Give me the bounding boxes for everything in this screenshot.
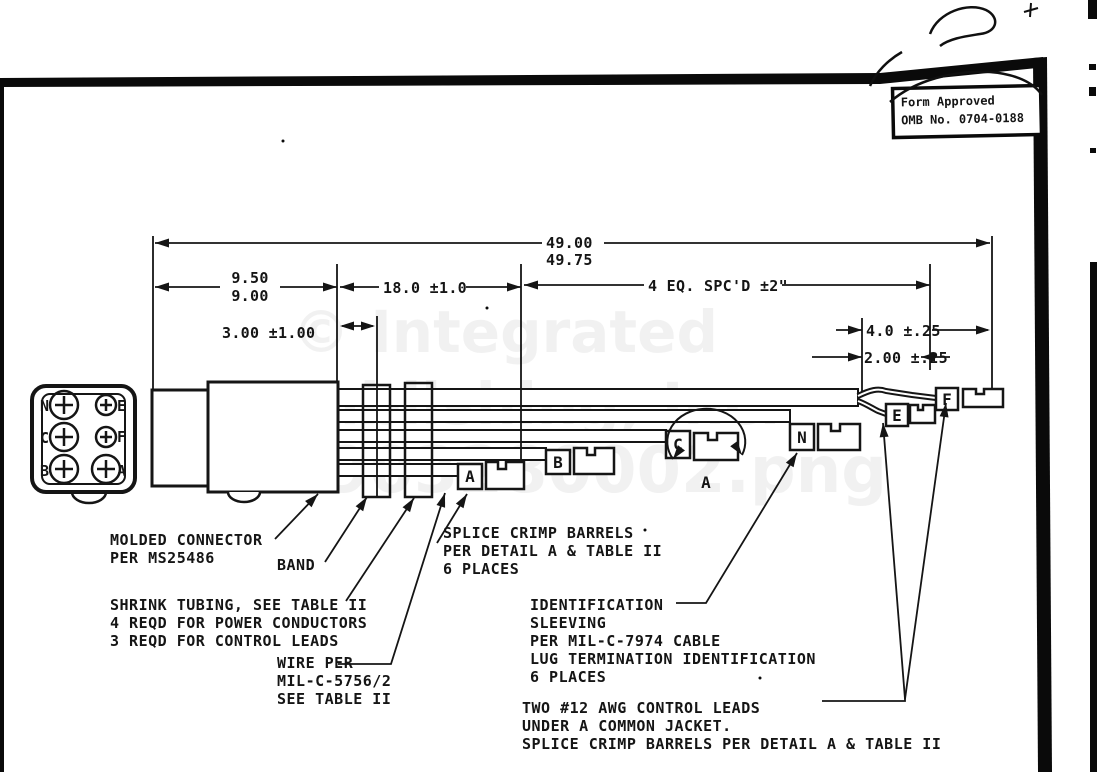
dim-overall-b: 49.75 xyxy=(546,251,593,269)
callout-identification: IDENTIFICATION SLEEVING PER MIL-C-7974 C… xyxy=(530,596,816,686)
callout-awg-line-3: SPLICE CRIMP BARRELS PER DETAIL A & TABL… xyxy=(522,735,941,753)
callout-control-leads: TWO #12 AWG CONTROL LEADS UNDER A COMMON… xyxy=(522,699,941,753)
dim-overall-a: 49.00 xyxy=(546,234,593,252)
frame-right-border xyxy=(1033,57,1052,772)
callout-ident-line-4: LUG TERMINATION IDENTIFICATION xyxy=(530,650,816,668)
callout-splice-line-1: SPLICE CRIMP BARRELS xyxy=(443,524,634,542)
stamp-line-2: OMB No. 0704-0188 xyxy=(901,111,1024,128)
callout-band-line-1: BAND xyxy=(277,556,315,574)
callout-wire-line-2: MIL-C-5756/2 xyxy=(277,672,391,690)
callout-wire-line-1: WIRE PER xyxy=(277,654,354,672)
pin-label-c: C xyxy=(40,429,49,447)
wire-row-b xyxy=(338,448,546,460)
approval-stamp: Form Approved OMB No. 0704-0188 xyxy=(893,85,1042,137)
callout-wire-line-3: SEE TABLE II xyxy=(277,690,391,708)
callout-splice-line-3: 6 PLACES xyxy=(443,560,519,578)
sleeve-letter-n: N xyxy=(797,428,807,447)
callout-ident-line-2: SLEEVING xyxy=(530,614,606,632)
callout-wire: WIRE PER MIL-C-5756/2 SEE TABLE II xyxy=(277,654,391,708)
pin-label-f: F xyxy=(117,428,126,446)
callout-ident-line-3: PER MIL-C-7974 CABLE xyxy=(530,632,721,650)
callout-splice-line-2: PER DETAIL A & TABLE II xyxy=(443,542,662,560)
dim-seg2: 18.0 ±1.0 xyxy=(383,279,467,297)
scanned-drawing-page: © Integrated Publishing, Inc. MS90328000… xyxy=(0,0,1097,772)
dim-seg1-a: 9.50 xyxy=(231,269,268,287)
callout-ident-line-1: IDENTIFICATION xyxy=(530,596,663,614)
pin-label-e: E xyxy=(117,397,126,415)
detail-a-label: A xyxy=(701,473,711,492)
callout-splice: SPLICE CRIMP BARRELS PER DETAIL A & TABL… xyxy=(443,524,662,578)
callout-awg-line-2: UNDER A COMMON JACKET. xyxy=(522,717,732,735)
dim-seg1-b: 9.00 xyxy=(231,287,268,305)
wire-row-a xyxy=(338,464,458,476)
callout-band: BAND xyxy=(277,556,315,574)
crimp-barrel-b xyxy=(574,448,614,474)
dim-band: 3.00 ±1.00 xyxy=(222,324,315,342)
callout-molded-line-2: PER MS25486 xyxy=(110,549,215,567)
callout-shrink-line-3: 3 REQD FOR CONTROL LEADS xyxy=(110,632,339,650)
dim-lug: 2.00 ±.25 xyxy=(864,349,948,367)
pin-label-n: N xyxy=(40,397,49,415)
connector-face: N E C F B A xyxy=(32,386,135,503)
crimp-barrel-a xyxy=(486,462,524,489)
dim-seg3: 4 EQ. SPC'D ±2" xyxy=(648,277,788,295)
crimp-barrel-f xyxy=(963,389,1003,407)
dim-lead: 4.0 ±.25 xyxy=(866,322,941,340)
connector-nose xyxy=(152,390,208,486)
frame-left-border xyxy=(0,80,4,772)
molded-connector xyxy=(152,382,338,502)
wire-row-c xyxy=(338,430,666,442)
callout-molded-connector: MOLDED CONNECTOR PER MS25486 xyxy=(110,531,263,567)
connector-body xyxy=(208,382,338,492)
sleeve-letter-e: E xyxy=(892,406,902,425)
sleeve-letter-a: A xyxy=(465,467,475,486)
crimp-barrel-n xyxy=(818,424,860,450)
watermark-line-1: © Integrated xyxy=(292,298,718,366)
callout-ident-line-5: 6 PLACES xyxy=(530,668,606,686)
pin-label-b: B xyxy=(40,462,49,480)
callout-texts: MOLDED CONNECTOR PER MS25486 BAND SHRINK… xyxy=(110,524,941,753)
callout-awg-line-1: TWO #12 AWG CONTROL LEADS xyxy=(522,699,760,717)
callout-shrink-line-1: SHRINK TUBING, SEE TABLE II xyxy=(110,596,367,614)
jacketed-cable xyxy=(338,389,858,406)
callout-shrink-tubing: SHRINK TUBING, SEE TABLE II 4 REQD FOR P… xyxy=(110,596,367,650)
crimp-barrel-e xyxy=(910,405,935,423)
pin-label-a: A xyxy=(117,462,126,480)
stamp-line-1: Form Approved xyxy=(901,93,995,109)
callout-shrink-line-2: 4 REQD FOR POWER CONDUCTORS xyxy=(110,614,367,632)
sleeve-letter-b: B xyxy=(553,453,563,472)
connector-key-bump xyxy=(228,492,260,502)
callout-molded-line-1: MOLDED CONNECTOR xyxy=(110,531,263,549)
sleeve-letter-f: F xyxy=(942,390,952,409)
wiring-harness-diagram: © Integrated Publishing, Inc. MS90328000… xyxy=(0,0,1097,772)
